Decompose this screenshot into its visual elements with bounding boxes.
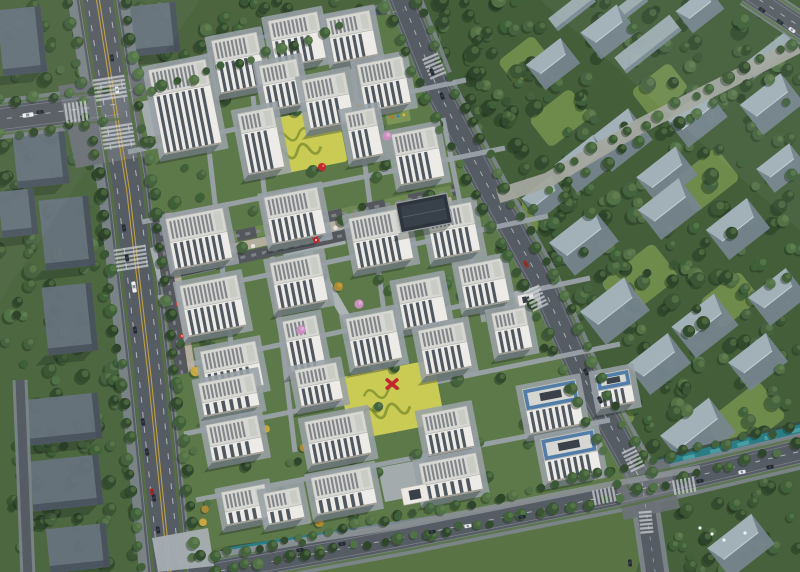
rendering-canvas	[0, 0, 800, 572]
aerial-masterplan-rendering	[0, 0, 800, 572]
